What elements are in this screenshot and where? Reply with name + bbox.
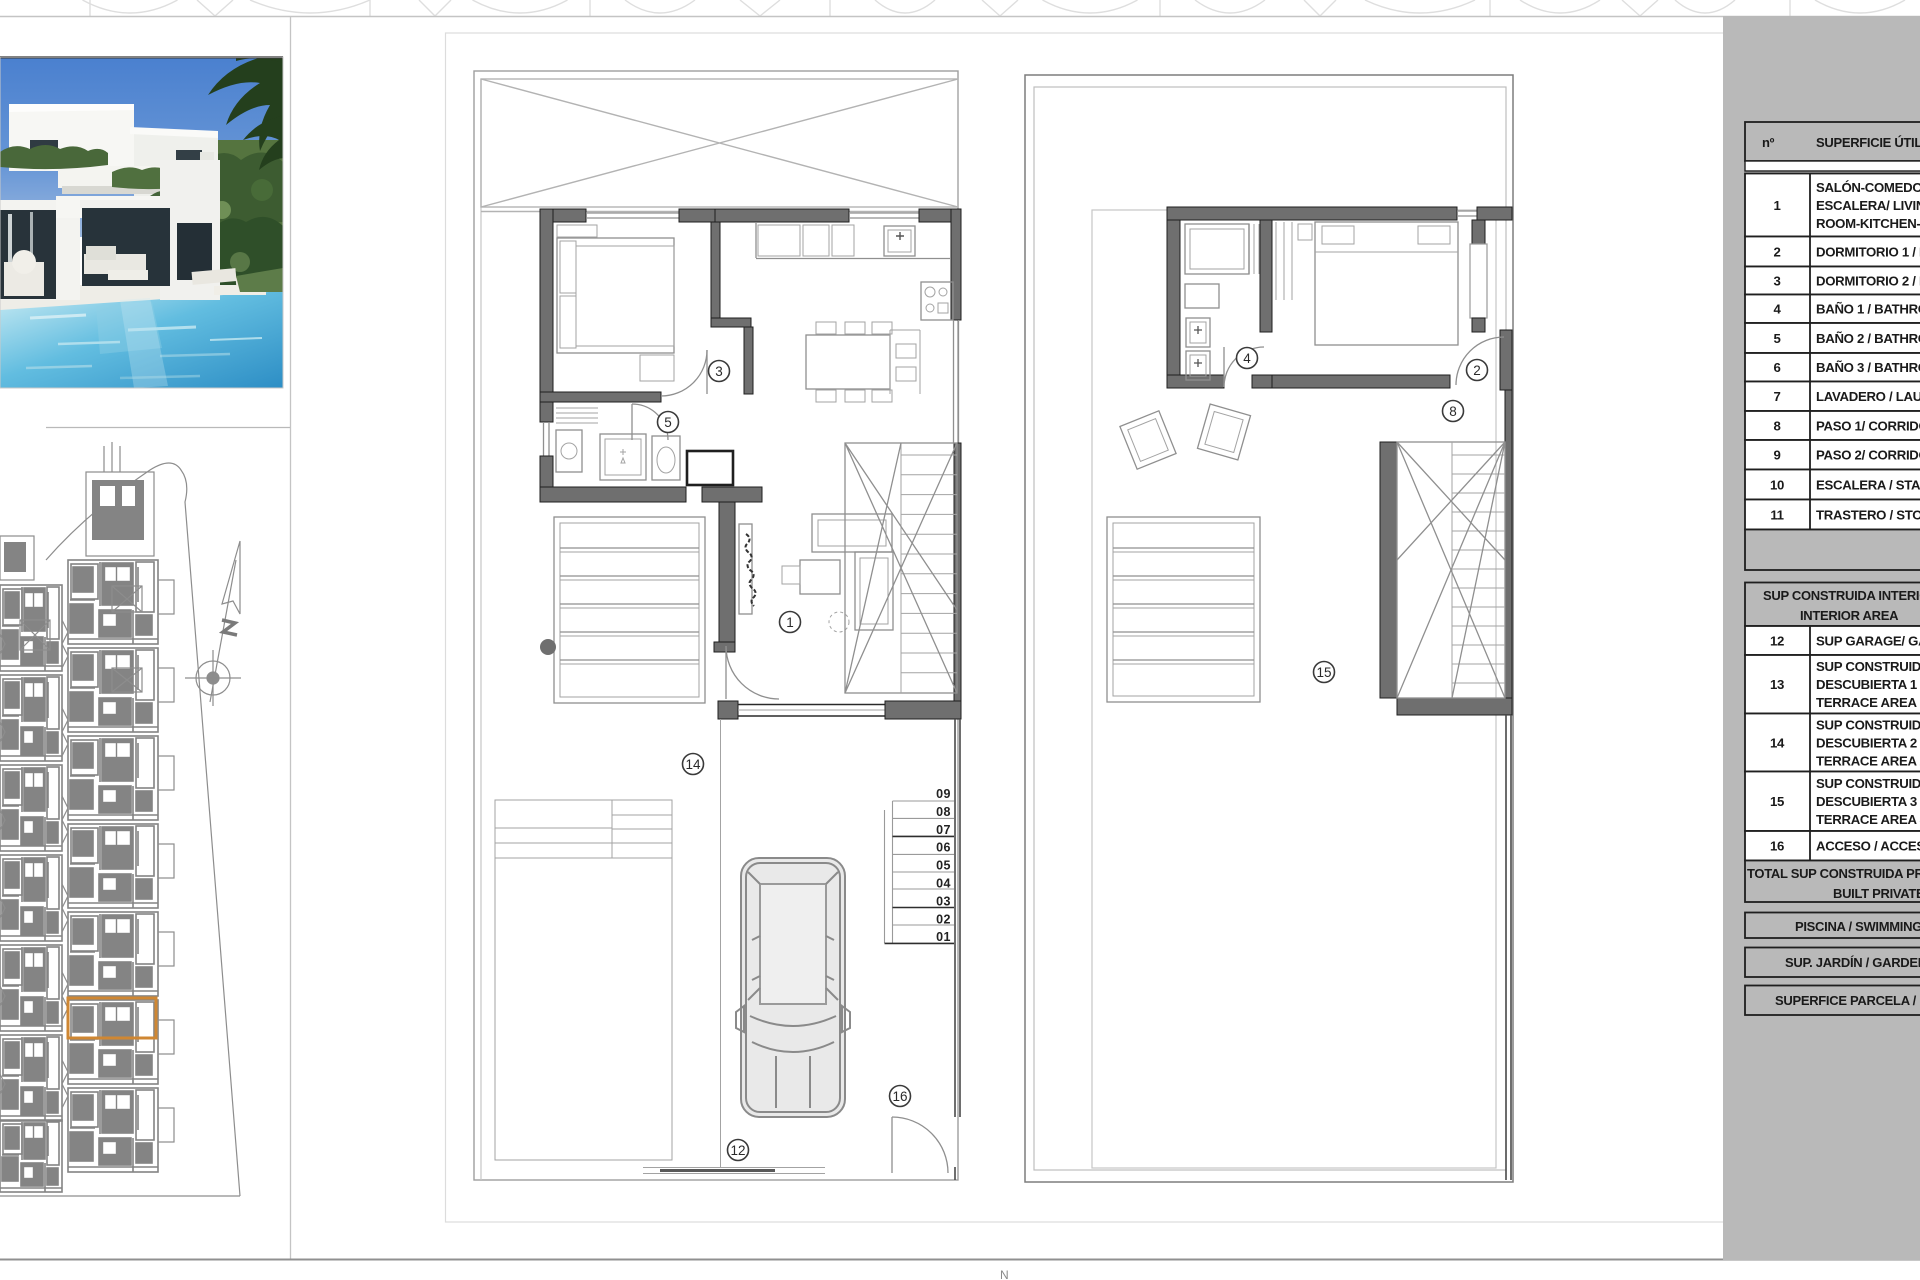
svg-text:INTERIOR AREA: INTERIOR AREA [1800,608,1899,623]
svg-text:12: 12 [1770,633,1784,648]
svg-text:11: 11 [1770,507,1783,522]
svg-text:1: 1 [1773,198,1780,213]
svg-text:01: 01 [936,930,951,944]
svg-text:PISCINA / SWIMMING POOL: PISCINA / SWIMMING POOL [1795,919,1920,934]
svg-text:3: 3 [715,364,723,379]
svg-text:DESCUBIERTA 3 /: DESCUBIERTA 3 / [1816,794,1920,809]
svg-text:BUILT PRIVATE AREA: BUILT PRIVATE AREA [1833,886,1920,901]
svg-text:14: 14 [685,757,701,772]
svg-text:6: 6 [1773,360,1780,375]
svg-text:TOTAL SUP CONSTRUIDA PRIVADA: TOTAL SUP CONSTRUIDA PRIVADA [1747,866,1920,881]
svg-text:1: 1 [786,615,794,630]
svg-text:12: 12 [730,1143,745,1158]
svg-text:09: 09 [936,787,951,801]
svg-text:9: 9 [1773,448,1780,463]
svg-text:SUP GARAGE/ GARAGE: SUP GARAGE/ GARAGE [1816,633,1920,648]
svg-text:SUP CONSTRUIDA: SUP CONSTRUIDA [1816,659,1920,674]
svg-text:02: 02 [936,912,951,926]
svg-text:SUP CONSTRUIDA: SUP CONSTRUIDA [1816,776,1920,791]
svg-text:SUP CONSTRUIDA: SUP CONSTRUIDA [1816,717,1920,732]
svg-text:DORMITORIO 1 / BEDROOM 1: DORMITORIO 1 / BEDROOM 1 [1816,244,1920,259]
svg-text:SALÓN-COMEDOR-COCINA-: SALÓN-COMEDOR-COCINA- [1816,180,1920,195]
svg-text:TERRACE AREA 1: TERRACE AREA 1 [1816,695,1920,710]
svg-text:nº: nº [1762,135,1775,150]
svg-text:03: 03 [936,894,951,908]
svg-text:SUPERFICE PARCELA / PLOT: SUPERFICE PARCELA / PLOT [1775,993,1920,1008]
svg-text:16: 16 [892,1089,907,1104]
svg-text:ESCALERA/ LIVING-DINING: ESCALERA/ LIVING-DINING [1816,198,1920,213]
svg-text:LAVADERO / LAUNDRY: LAVADERO / LAUNDRY [1816,389,1920,404]
svg-text:14: 14 [1770,735,1785,750]
svg-text:4: 4 [1243,351,1251,366]
svg-text:15: 15 [1770,794,1784,809]
svg-text:16: 16 [1770,839,1784,854]
svg-text:2: 2 [1773,244,1780,259]
svg-text:PASO 1/ CORRIDOR 1: PASO 1/ CORRIDOR 1 [1816,418,1920,433]
svg-text:3: 3 [1773,273,1780,288]
svg-text:DESCUBIERTA 2 /: DESCUBIERTA 2 / [1816,735,1920,750]
svg-text:TERRACE AREA 3: TERRACE AREA 3 [1816,812,1920,827]
svg-text:8: 8 [1449,404,1457,419]
svg-text:N: N [1000,1268,1009,1280]
svg-text:TERRACE AREA 2: TERRACE AREA 2 [1816,753,1920,768]
svg-text:ESCALERA / STAIRS: ESCALERA / STAIRS [1816,477,1920,492]
svg-text:8: 8 [1773,418,1780,433]
svg-text:BAÑO 2 / BATHROOM 2: BAÑO 2 / BATHROOM 2 [1816,331,1920,346]
svg-text:TRASTERO / STORAGE: TRASTERO / STORAGE [1816,507,1920,522]
svg-text:5: 5 [1773,331,1780,346]
svg-text:5: 5 [664,415,672,430]
svg-text:2: 2 [1473,363,1481,378]
svg-text:04: 04 [936,877,951,891]
svg-text:BAÑO 1 / BATHROOM 1: BAÑO 1 / BATHROOM 1 [1816,302,1920,317]
svg-text:PASO 2/ CORRIDOR 2: PASO 2/ CORRIDOR 2 [1816,448,1920,463]
svg-text:4: 4 [1773,302,1781,317]
svg-text:08: 08 [936,805,951,819]
svg-text:10: 10 [1770,477,1784,492]
svg-text:13: 13 [1770,677,1784,692]
svg-text:ACCESO / ACCESS: ACCESO / ACCESS [1816,839,1920,854]
svg-text:06: 06 [936,841,951,855]
svg-text:DESCUBIERTA 1 /: DESCUBIERTA 1 / [1816,677,1920,692]
svg-text:7: 7 [1773,389,1780,404]
svg-text:07: 07 [936,823,951,837]
svg-text:SUP CONSTRUIDA INTERIOR /: SUP CONSTRUIDA INTERIOR / [1763,588,1920,603]
svg-text:15: 15 [1316,665,1331,680]
svg-text:BAÑO 3 / BATHROOM 3: BAÑO 3 / BATHROOM 3 [1816,360,1920,375]
svg-text:SUP. JARDÍN / GARDEN: SUP. JARDÍN / GARDEN [1785,955,1920,970]
svg-text:ROOM-KITCHEN-STAIRS: ROOM-KITCHEN-STAIRS [1816,216,1920,231]
svg-text:05: 05 [936,859,951,873]
svg-text:DORMITORIO 2 / BEDROOM 2: DORMITORIO 2 / BEDROOM 2 [1816,273,1920,288]
svg-text:SUPERFICIE ÚTILES / USEFUL: SUPERFICIE ÚTILES / USEFUL [1816,135,1920,150]
